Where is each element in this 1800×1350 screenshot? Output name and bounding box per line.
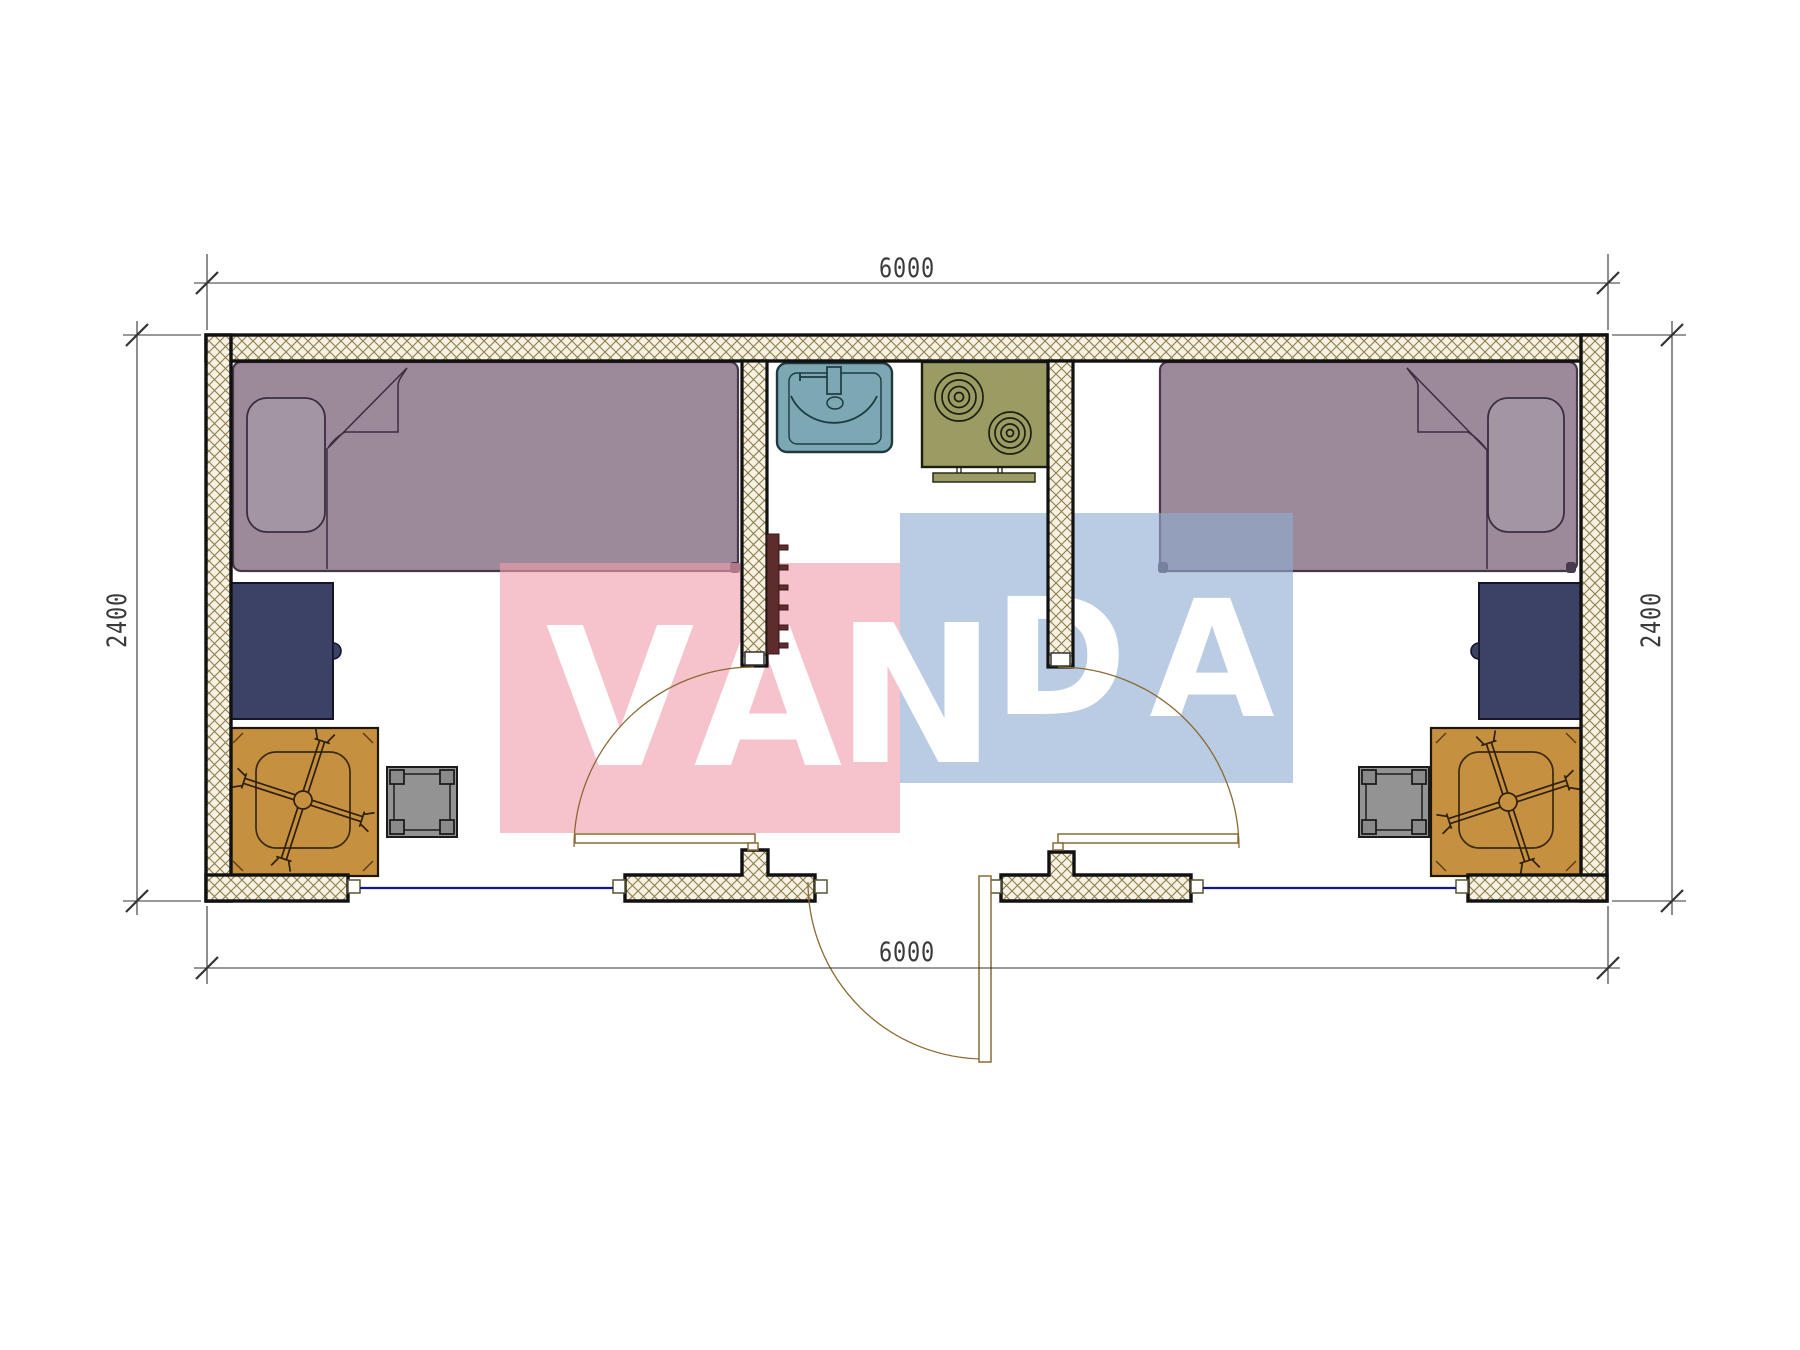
stove-control-panel (933, 473, 1035, 482)
left-door-leaf (575, 834, 755, 843)
entrance-door (808, 876, 991, 1062)
dimension-label-top: 6000 (879, 253, 935, 284)
bottom-wall-right-segment (1468, 875, 1607, 901)
right-stool (1359, 767, 1429, 837)
dimension-label-bottom: 6000 (879, 937, 935, 968)
left-office-chair (212, 709, 393, 890)
entrance-door-swing-arc (808, 882, 985, 1059)
bottom-wall-left-segment (206, 875, 348, 901)
dimension-label-right: 2400 (1636, 592, 1667, 648)
left-desk (228, 583, 341, 719)
bathroom-sink (777, 363, 892, 452)
watermark-letter: A (1149, 567, 1274, 755)
right-bed-pillow (1488, 398, 1564, 532)
entrance-door-leaf (979, 876, 991, 1062)
bathroom-right-partition (1048, 361, 1073, 667)
left-stool (387, 767, 457, 837)
bottom-wall-left-door-jamb (625, 850, 815, 901)
top-wall (206, 335, 1607, 361)
bottom-wall-right-door-jamb (1001, 852, 1191, 901)
floor-plan-drawing: V A N D A (0, 0, 1800, 1350)
right-wall (1581, 335, 1607, 901)
right-door-leaf (1058, 834, 1238, 843)
left-wall (206, 335, 231, 901)
dimension-label-left: 2400 (102, 592, 133, 648)
sink-faucet (827, 367, 841, 394)
left-bed (233, 362, 740, 573)
dimension-left (123, 321, 201, 915)
right-bed-post (1566, 562, 1576, 573)
kitchen-stove (922, 362, 1048, 482)
bathroom-left-partition (742, 361, 767, 666)
left-desk-knob (333, 643, 341, 659)
floor-plan-page: V A N D A (0, 0, 1800, 1350)
right-office-chair (1417, 711, 1598, 892)
right-desk (1471, 583, 1581, 719)
right-desk-knob (1471, 643, 1479, 659)
watermark-letter: V (546, 588, 695, 811)
right-door-hinge (1053, 843, 1063, 850)
left-door-hinge (748, 843, 758, 850)
left-bed-pillow (247, 398, 325, 532)
frame-blocks (348, 880, 1468, 893)
watermark-letter: N (836, 585, 997, 808)
